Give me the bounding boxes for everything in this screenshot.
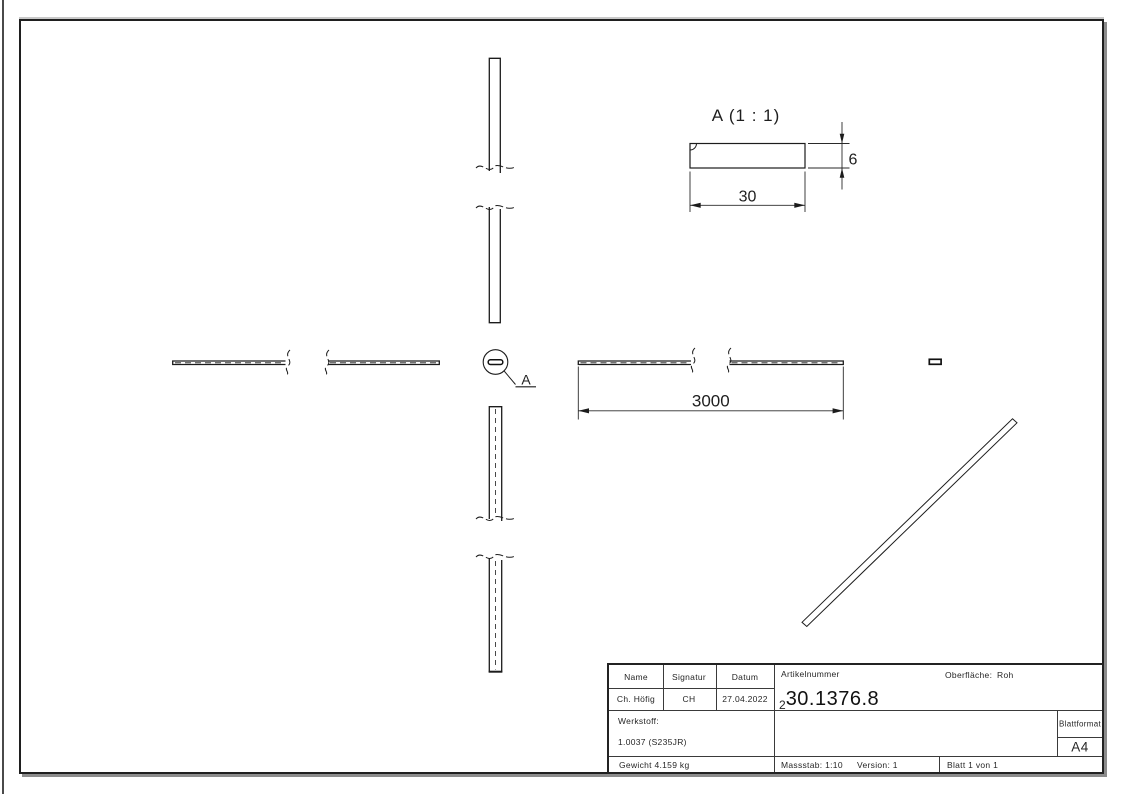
break-line (476, 205, 514, 209)
break-line (727, 348, 731, 374)
name-value: Ch. Höfig (617, 694, 655, 704)
blatt-value: Blatt 1 von 1 (947, 760, 998, 770)
detail-callout-letter: A (521, 372, 531, 388)
signatur-value: CH (683, 694, 696, 704)
view-bottom-vertical (476, 407, 514, 672)
length-dimension-text: 3000 (692, 392, 730, 411)
bar-end-view-in-circle (488, 360, 503, 365)
detail-bar-outline (690, 144, 805, 169)
blattformat-value: A4 (1071, 740, 1089, 755)
werkstoff-label: Werkstoff: (618, 716, 659, 726)
signatur-header: Signatur (672, 672, 706, 682)
arrowhead (833, 408, 844, 413)
break-line (476, 554, 514, 558)
arrowhead (840, 134, 845, 144)
break-line (286, 350, 290, 376)
grid-line (609, 688, 774, 689)
version-value: Version: 1 (857, 760, 898, 770)
grid-line (1057, 737, 1102, 738)
thickness-dimension-text: 6 (849, 152, 858, 169)
gewicht-value: Gewicht 4.159 kg (619, 760, 689, 770)
arrowhead (840, 168, 845, 178)
artikelnummer-number: 30.1376.8 (786, 688, 879, 710)
break-line (476, 516, 514, 520)
grid-line (609, 756, 1102, 757)
massstab-value: Massstab: 1:10 (781, 760, 843, 770)
top-view-segment-2 (489, 207, 500, 323)
drawing-sheet: 3000 A A (1 : 1) 6 3 (0, 0, 1123, 794)
bar-end-view (929, 359, 941, 364)
break-line (691, 348, 695, 374)
view-left-horizontal (173, 350, 440, 376)
title-block: Name Signatur Datum Ch. Höfig CH 27.04.2… (607, 663, 1104, 774)
view-right-horizontal (578, 348, 843, 374)
top-view-segment-1 (489, 58, 500, 173)
arrowhead (794, 203, 805, 208)
arrowhead (690, 203, 701, 208)
width-dimension-text: 30 (739, 189, 757, 206)
artikelnummer-value: 230.1376.8 (779, 688, 879, 712)
artikelnummer-label: Artikelnummer (781, 669, 840, 679)
datum-header: Datum (732, 672, 759, 682)
break-line (325, 350, 329, 376)
grid-line (939, 756, 940, 772)
oberflaeche-value: Roh (997, 670, 1014, 680)
arrowhead (578, 408, 589, 413)
blattformat-label: Blattformat (1059, 720, 1101, 729)
name-header: Name (624, 672, 648, 682)
isometric-bar-view (802, 419, 1017, 627)
detail-view-geometry (690, 144, 805, 169)
grid-line (1057, 710, 1058, 756)
oberflaeche-label: Oberfläche: (945, 670, 992, 680)
view-top-vertical (476, 58, 514, 322)
artikelnummer-prefix: 2 (779, 698, 786, 712)
break-line (476, 165, 514, 169)
detail-view-title: A (1 : 1) (712, 106, 781, 125)
callout-leader-line (504, 371, 515, 384)
dimension-6 (808, 122, 850, 190)
datum-value: 27.04.2022 (722, 694, 768, 704)
werkstoff-value: 1.0037 (S235JR) (618, 737, 687, 747)
